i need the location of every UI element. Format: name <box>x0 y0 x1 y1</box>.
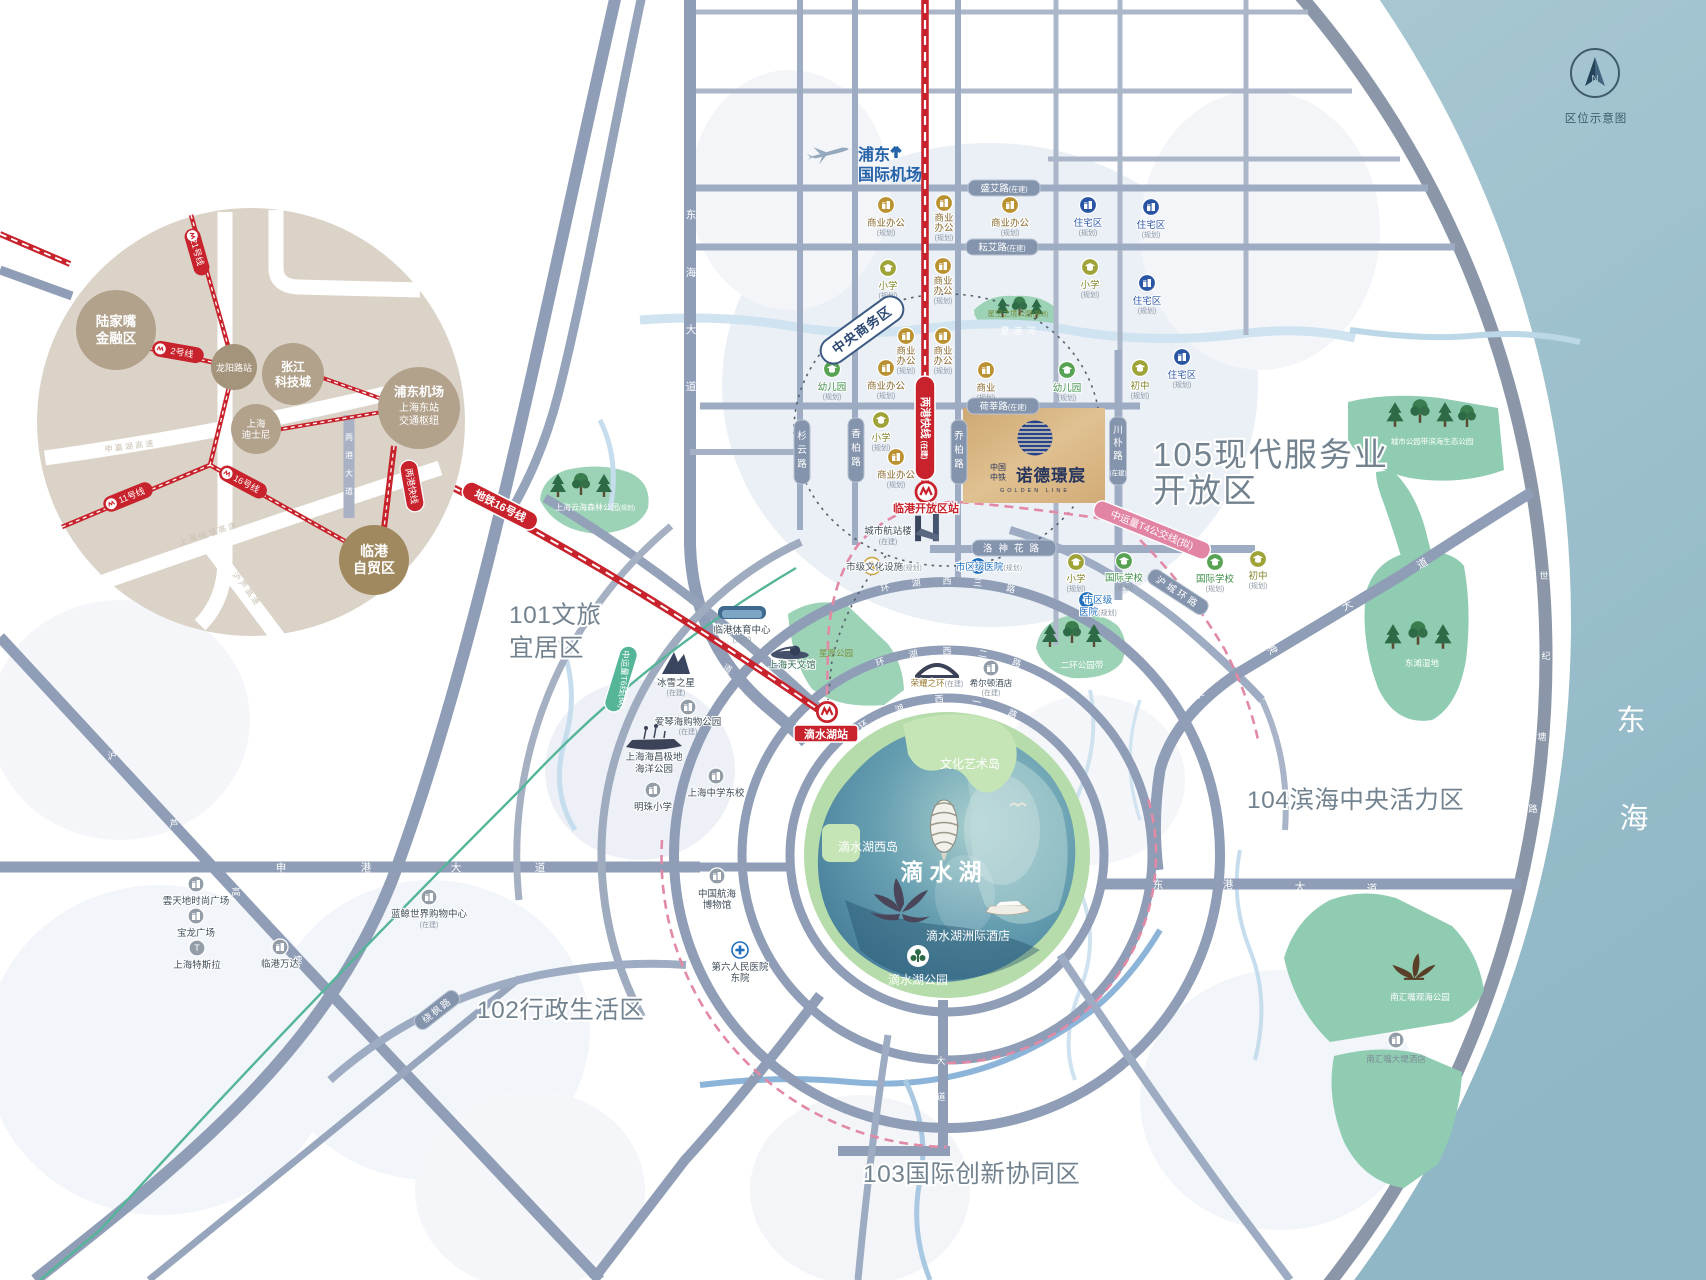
svg-text:雲天地时尚广场: 雲天地时尚广场 <box>163 895 230 907</box>
svg-text:希尔顿酒店: 希尔顿酒店 <box>970 678 1013 688</box>
svg-text:商业: 商业 <box>976 382 995 394</box>
svg-text:港: 港 <box>1223 879 1234 891</box>
svg-text:东院: 东院 <box>730 972 750 984</box>
svg-text:东: 东 <box>686 208 697 221</box>
svg-text:滴水湖站: 滴水湖站 <box>804 727 848 741</box>
svg-text:小学: 小学 <box>1066 573 1085 585</box>
svg-text:东: 东 <box>1153 878 1164 891</box>
svg-text:幼儿园: 幼儿园 <box>818 381 847 393</box>
svg-text:乔: 乔 <box>954 430 964 442</box>
svg-text:南汇嘴观海公园: 南汇嘴观海公园 <box>1390 992 1450 1002</box>
svg-text:自贸区: 自贸区 <box>353 560 395 576</box>
svg-text:住宅区: 住宅区 <box>1133 295 1162 307</box>
svg-text:办公: 办公 <box>896 355 916 367</box>
svg-text:第六人民医院: 第六人民医院 <box>711 961 769 973</box>
svg-text:上海天文馆: 上海天文馆 <box>768 659 816 671</box>
svg-text:二环公园带: 二环公园带 <box>1061 660 1104 670</box>
svg-text:大: 大 <box>345 468 353 478</box>
svg-text:湖: 湖 <box>911 577 921 588</box>
svg-text:云: 云 <box>797 445 807 456</box>
svg-text:(规划): (规划) <box>1173 380 1192 389</box>
svg-text:大: 大 <box>936 1055 945 1066</box>
svg-text:港: 港 <box>345 450 353 460</box>
svg-text:三: 三 <box>973 577 983 588</box>
svg-text:沪: 沪 <box>107 750 116 761</box>
svg-text:T: T <box>194 943 200 953</box>
svg-text:临港: 临港 <box>360 543 389 559</box>
svg-text:路: 路 <box>851 456 861 468</box>
svg-text:(规划): (规划) <box>872 443 891 452</box>
svg-text:(规划): (规划) <box>823 392 842 401</box>
svg-text:明珠小学: 明珠小学 <box>634 801 672 813</box>
svg-text:道: 道 <box>703 1113 712 1124</box>
svg-text:(在建): (在建) <box>420 920 439 929</box>
svg-text:GOLDEN LINE: GOLDEN LINE <box>1000 488 1070 494</box>
svg-text:塘: 塘 <box>1537 731 1546 742</box>
svg-text:西: 西 <box>934 694 944 704</box>
svg-text:道: 道 <box>686 380 697 393</box>
svg-text:(规划): (规划) <box>1142 230 1161 239</box>
svg-text:道: 道 <box>1367 882 1378 895</box>
svg-text:大: 大 <box>686 323 697 336</box>
svg-text:滴水湖洲际酒店: 滴水湖洲际酒店 <box>926 928 1010 943</box>
svg-text:浦东: 浦东 <box>858 145 890 164</box>
svg-text:柏: 柏 <box>954 444 964 456</box>
svg-text:洛神花路: 洛神花路 <box>983 543 1045 555</box>
svg-text:诺德璟宸: 诺德璟宸 <box>1016 465 1086 485</box>
svg-text:(规划): (规划) <box>897 366 916 375</box>
svg-text:(规划): (规划) <box>887 480 906 489</box>
svg-text:道: 道 <box>423 808 432 819</box>
svg-text:(规划): (规划) <box>1001 228 1020 237</box>
svg-text:柏: 柏 <box>851 442 861 454</box>
svg-text:(规划): (规划) <box>1249 581 1268 590</box>
svg-text:(规划): (规划) <box>1081 290 1100 299</box>
svg-text:(规划): (规划) <box>1206 584 1225 593</box>
svg-text:上海特斯拉: 上海特斯拉 <box>173 959 221 971</box>
svg-text:住宅区: 住宅区 <box>1168 369 1197 381</box>
svg-text:路: 路 <box>954 458 964 470</box>
svg-text:世: 世 <box>1539 570 1548 581</box>
svg-text:(规划): (规划) <box>935 233 954 242</box>
svg-text:龙阳路站: 龙阳路站 <box>216 362 252 373</box>
svg-text:滴水湖公园: 滴水湖公园 <box>888 972 948 987</box>
svg-text:商业办公: 商业办公 <box>991 217 1030 229</box>
svg-text:(规划): (规划) <box>977 393 996 402</box>
svg-text:开放区: 开放区 <box>1153 472 1258 509</box>
svg-text:(规划): (规划) <box>1138 306 1157 315</box>
svg-text:(在建): (在建) <box>679 727 698 736</box>
svg-text:(规划): (规划) <box>934 296 953 305</box>
svg-text:上海中学东校: 上海中学东校 <box>687 787 745 799</box>
svg-text:朴: 朴 <box>1113 437 1123 449</box>
svg-text:冰雪之星: 冰雪之星 <box>657 677 695 689</box>
svg-text:102行政生活区: 102行政生活区 <box>477 996 644 1024</box>
svg-text:滴水湖西岛: 滴水湖西岛 <box>838 839 898 854</box>
svg-text:迪士尼: 迪士尼 <box>242 429 271 441</box>
svg-text:(规划): (规划) <box>877 391 896 400</box>
svg-text:小学: 小学 <box>878 280 897 292</box>
svg-text:道: 道 <box>345 486 353 496</box>
svg-text:(规划): (规划) <box>1058 393 1077 402</box>
svg-text:小学: 小学 <box>1080 279 1099 291</box>
svg-text:大: 大 <box>1295 880 1306 893</box>
svg-text:申: 申 <box>276 861 287 874</box>
svg-text:香: 香 <box>851 429 861 440</box>
svg-text:纪: 纪 <box>1541 650 1550 661</box>
svg-text:东滩湿地: 东滩湿地 <box>1405 658 1440 668</box>
svg-text:(规划): (规划) <box>1115 583 1134 592</box>
svg-text:星愿公园: 星愿公园 <box>819 648 853 658</box>
svg-text:中国: 中国 <box>990 462 1006 472</box>
svg-text:一: 一 <box>971 696 982 708</box>
svg-text:商业办公: 商业办公 <box>867 217 906 229</box>
svg-text:文化艺术岛: 文化艺术岛 <box>940 756 1000 771</box>
svg-text:(在建): (在建) <box>1109 468 1126 477</box>
svg-text:滴水湖: 滴水湖 <box>901 859 988 885</box>
svg-text:初中: 初中 <box>1130 380 1149 392</box>
svg-text:道: 道 <box>535 861 546 874</box>
svg-text:交通枢纽: 交通枢纽 <box>399 414 439 427</box>
svg-text:幼儿园: 幼儿园 <box>1053 382 1082 394</box>
svg-text:办公: 办公 <box>933 355 953 367</box>
svg-text:张江: 张江 <box>281 359 305 374</box>
svg-text:(在建): (在建) <box>879 537 898 546</box>
svg-text:国际机场: 国际机场 <box>858 165 922 184</box>
svg-text:商业办公: 商业办公 <box>867 380 906 392</box>
svg-text:科技城: 科技城 <box>275 374 311 389</box>
svg-text:杉: 杉 <box>797 430 807 442</box>
svg-text:大: 大 <box>745 1066 754 1077</box>
svg-text:南汇嘴大堤酒店: 南汇嘴大堤酒店 <box>1366 1054 1426 1064</box>
svg-text:高: 高 <box>231 886 240 897</box>
svg-text:103国际创新协同区: 103国际创新协同区 <box>863 1160 1080 1188</box>
svg-text:小学: 小学 <box>871 432 890 444</box>
svg-text:(规划): (规划) <box>1131 391 1150 400</box>
svg-text:大: 大 <box>459 718 468 729</box>
svg-text:爱琴海购物公园: 爱琴海购物公园 <box>655 716 722 728</box>
svg-text:办公: 办公 <box>933 285 953 297</box>
svg-text:海: 海 <box>686 266 697 279</box>
svg-text:101文旅: 101文旅 <box>509 601 601 629</box>
svg-text:(规划): (规划) <box>1067 584 1086 593</box>
svg-text:博物馆: 博物馆 <box>703 899 732 911</box>
svg-text:市区级: 市区级 <box>1084 594 1113 606</box>
svg-text:东: 东 <box>1616 704 1645 737</box>
svg-text:大: 大 <box>451 861 462 874</box>
svg-text:西: 西 <box>942 646 951 656</box>
svg-text:(在建): (在建) <box>982 688 1001 697</box>
svg-text:(规划): (规划) <box>877 228 896 237</box>
svg-text:104滨海中央活力区: 104滨海中央活力区 <box>1247 786 1464 814</box>
svg-text:临港万达: 临港万达 <box>261 958 300 970</box>
svg-text:港: 港 <box>479 631 488 642</box>
svg-text:二: 二 <box>978 648 989 659</box>
svg-text:初中: 初中 <box>1248 570 1267 582</box>
svg-text:中国航海: 中国航海 <box>698 888 737 900</box>
svg-text:临港开放区站: 临港开放区站 <box>893 501 959 515</box>
svg-text:两: 两 <box>496 544 505 554</box>
svg-text:上海海昌极地: 上海海昌极地 <box>625 751 683 763</box>
svg-text:国际学校: 国际学校 <box>1196 573 1235 585</box>
svg-text:道: 道 <box>936 1091 945 1102</box>
svg-text:蓝鲸世界购物中心: 蓝鲸世界购物中心 <box>391 908 468 920</box>
svg-text:办公: 办公 <box>934 222 954 234</box>
svg-text:西: 西 <box>942 576 951 586</box>
svg-text:浦东机场: 浦东机场 <box>394 384 444 399</box>
svg-text:陆家嘴: 陆家嘴 <box>96 313 137 329</box>
svg-text:住宅区: 住宅区 <box>1137 219 1166 231</box>
svg-text:宝龙广场: 宝龙广场 <box>177 927 215 939</box>
svg-text:临港体育中心: 临港体育中心 <box>713 624 771 636</box>
svg-text:港: 港 <box>361 862 372 874</box>
svg-text:中铁: 中铁 <box>990 472 1006 482</box>
svg-text:上海: 上海 <box>246 418 266 430</box>
svg-text:海洋公园: 海洋公园 <box>635 763 673 775</box>
svg-text:商业办公: 商业办公 <box>877 469 916 481</box>
svg-text:宜居区: 宜居区 <box>509 634 584 662</box>
svg-text:区位示意图: 区位示意图 <box>1565 111 1628 125</box>
svg-text:两: 两 <box>345 433 353 442</box>
svg-text:(规划): (规划) <box>934 366 953 375</box>
svg-text:夏涟河: 夏涟河 <box>1000 325 1039 336</box>
svg-text:N: N <box>1591 74 1598 85</box>
svg-text:上海东站: 上海东站 <box>399 401 439 414</box>
svg-text:海: 海 <box>1619 802 1648 835</box>
svg-text:路: 路 <box>797 458 807 470</box>
svg-text:路: 路 <box>1113 450 1123 462</box>
svg-text:(规划): (规划) <box>733 635 752 644</box>
svg-text:金融区: 金融区 <box>95 330 137 346</box>
svg-text:川: 川 <box>1113 425 1123 436</box>
svg-text:(规划): (规划) <box>1079 228 1098 237</box>
svg-text:路: 路 <box>1528 803 1537 814</box>
svg-text:105现代服务业: 105现代服务业 <box>1153 436 1389 473</box>
svg-text:湖: 湖 <box>908 648 919 659</box>
svg-text:芦: 芦 <box>169 819 178 829</box>
svg-text:(在建): (在建) <box>667 688 686 697</box>
svg-text:住宅区: 住宅区 <box>1074 217 1103 229</box>
svg-text:城市航站楼: 城市航站楼 <box>864 525 912 537</box>
svg-text:国际学校: 国际学校 <box>1105 572 1144 584</box>
svg-text:城市公园带滨海生态公园: 城市公园带滨海生态公园 <box>1391 436 1474 446</box>
